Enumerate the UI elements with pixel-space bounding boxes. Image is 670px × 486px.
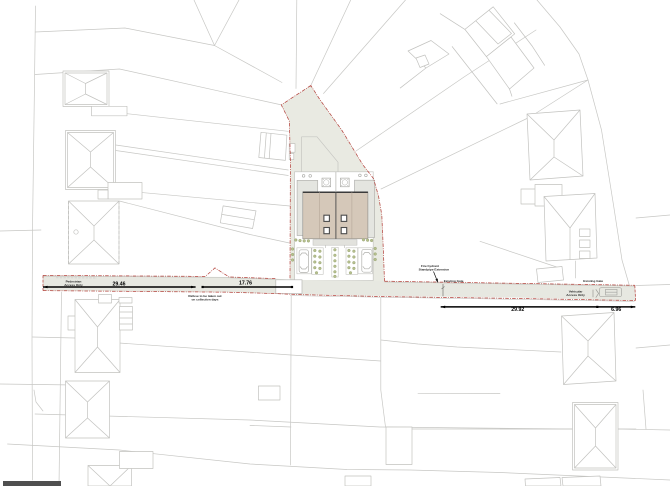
svg-text:Existing Gate: Existing Gate xyxy=(583,279,603,283)
svg-text:Access Only: Access Only xyxy=(566,293,585,297)
svg-text:29.92: 29.92 xyxy=(511,307,524,313)
svg-text:Access Only: Access Only xyxy=(64,283,83,287)
svg-text:Standpipe Extension: Standpipe Extension xyxy=(419,268,450,272)
svg-text:on collection days: on collection days xyxy=(192,297,219,301)
svg-text:29.46: 29.46 xyxy=(113,282,126,288)
svg-text:17.76: 17.76 xyxy=(239,281,252,287)
svg-text:6.96: 6.96 xyxy=(611,307,621,313)
svg-text:Existing Gate: Existing Gate xyxy=(444,279,464,283)
